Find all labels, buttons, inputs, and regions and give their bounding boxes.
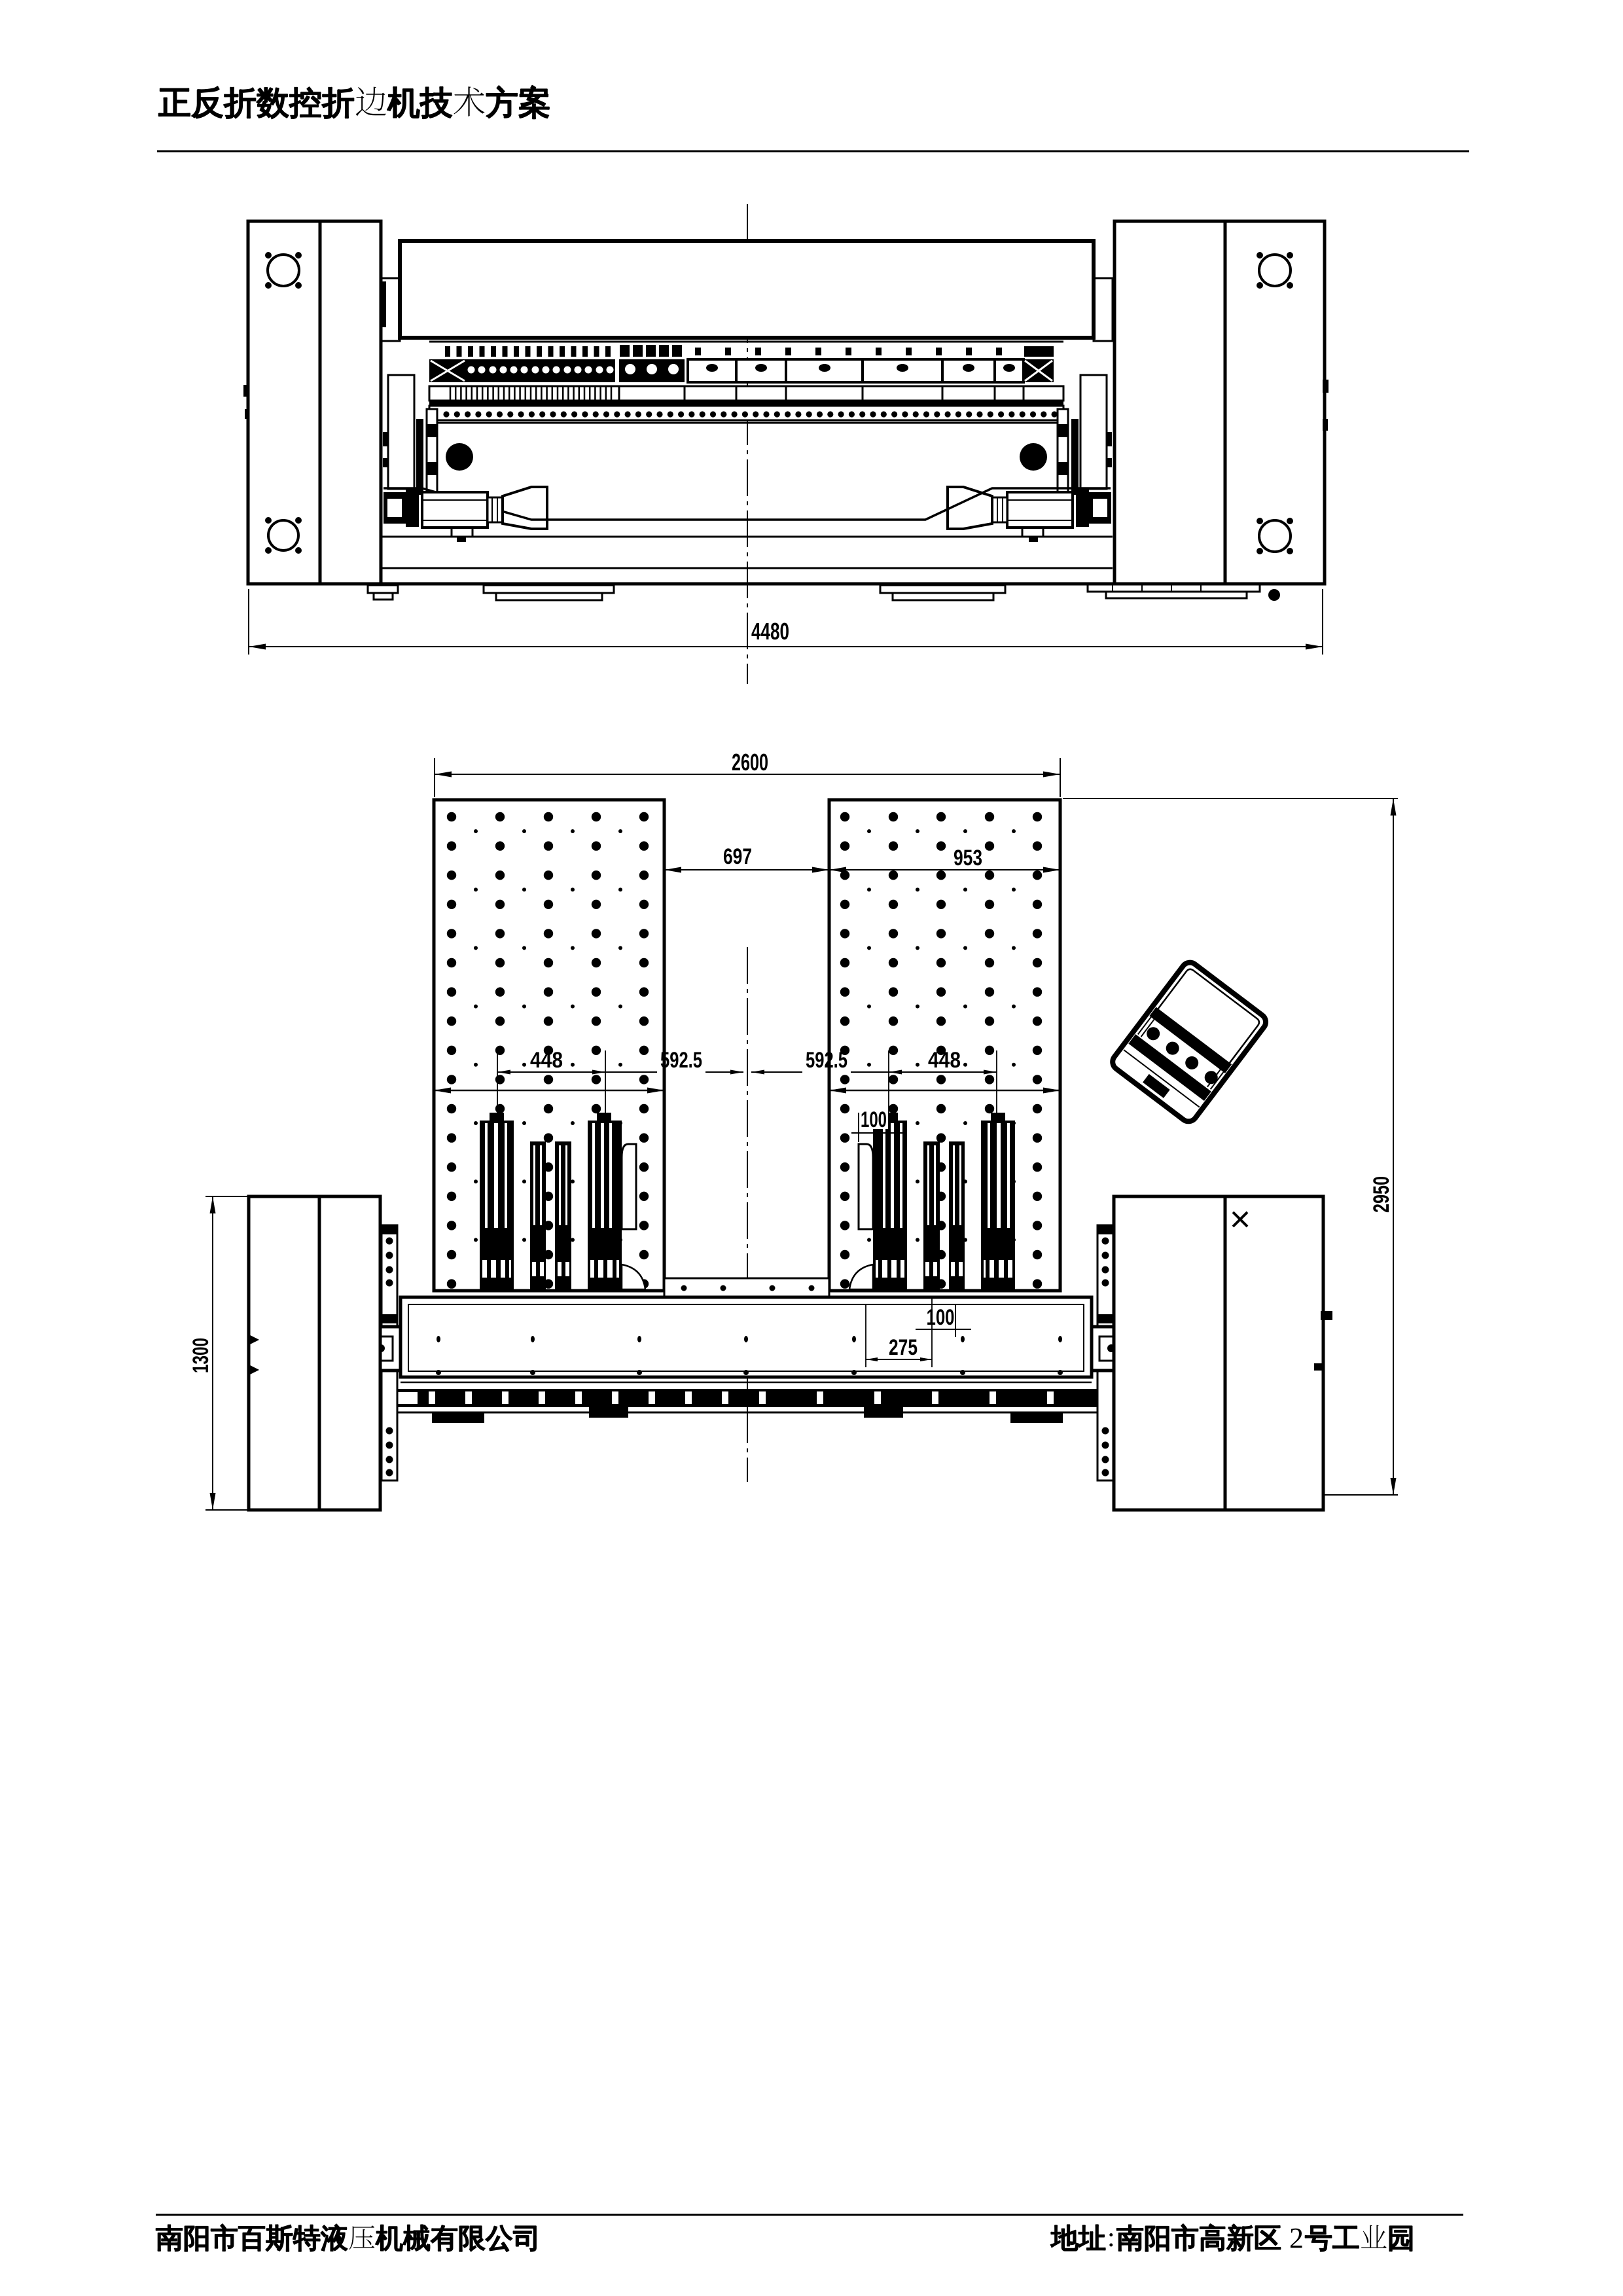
svg-text:100: 100	[861, 1107, 887, 1132]
svg-text:697: 697	[723, 844, 752, 869]
svg-text::: :	[1107, 2223, 1115, 2253]
svg-text:2: 2	[1289, 2222, 1304, 2254]
svg-text:1300: 1300	[188, 1338, 213, 1373]
svg-text:592.5: 592.5	[660, 1048, 702, 1073]
svg-text:4480: 4480	[751, 618, 789, 645]
svg-text:448: 448	[928, 1048, 961, 1073]
svg-text:592.5: 592.5	[806, 1048, 847, 1073]
svg-text:448: 448	[530, 1048, 563, 1073]
svg-text:2600: 2600	[732, 749, 768, 776]
svg-text:953: 953	[954, 846, 982, 870]
svg-text:100: 100	[927, 1305, 955, 1330]
svg-text:2950: 2950	[1369, 1176, 1394, 1213]
svg-text:275: 275	[889, 1335, 918, 1360]
